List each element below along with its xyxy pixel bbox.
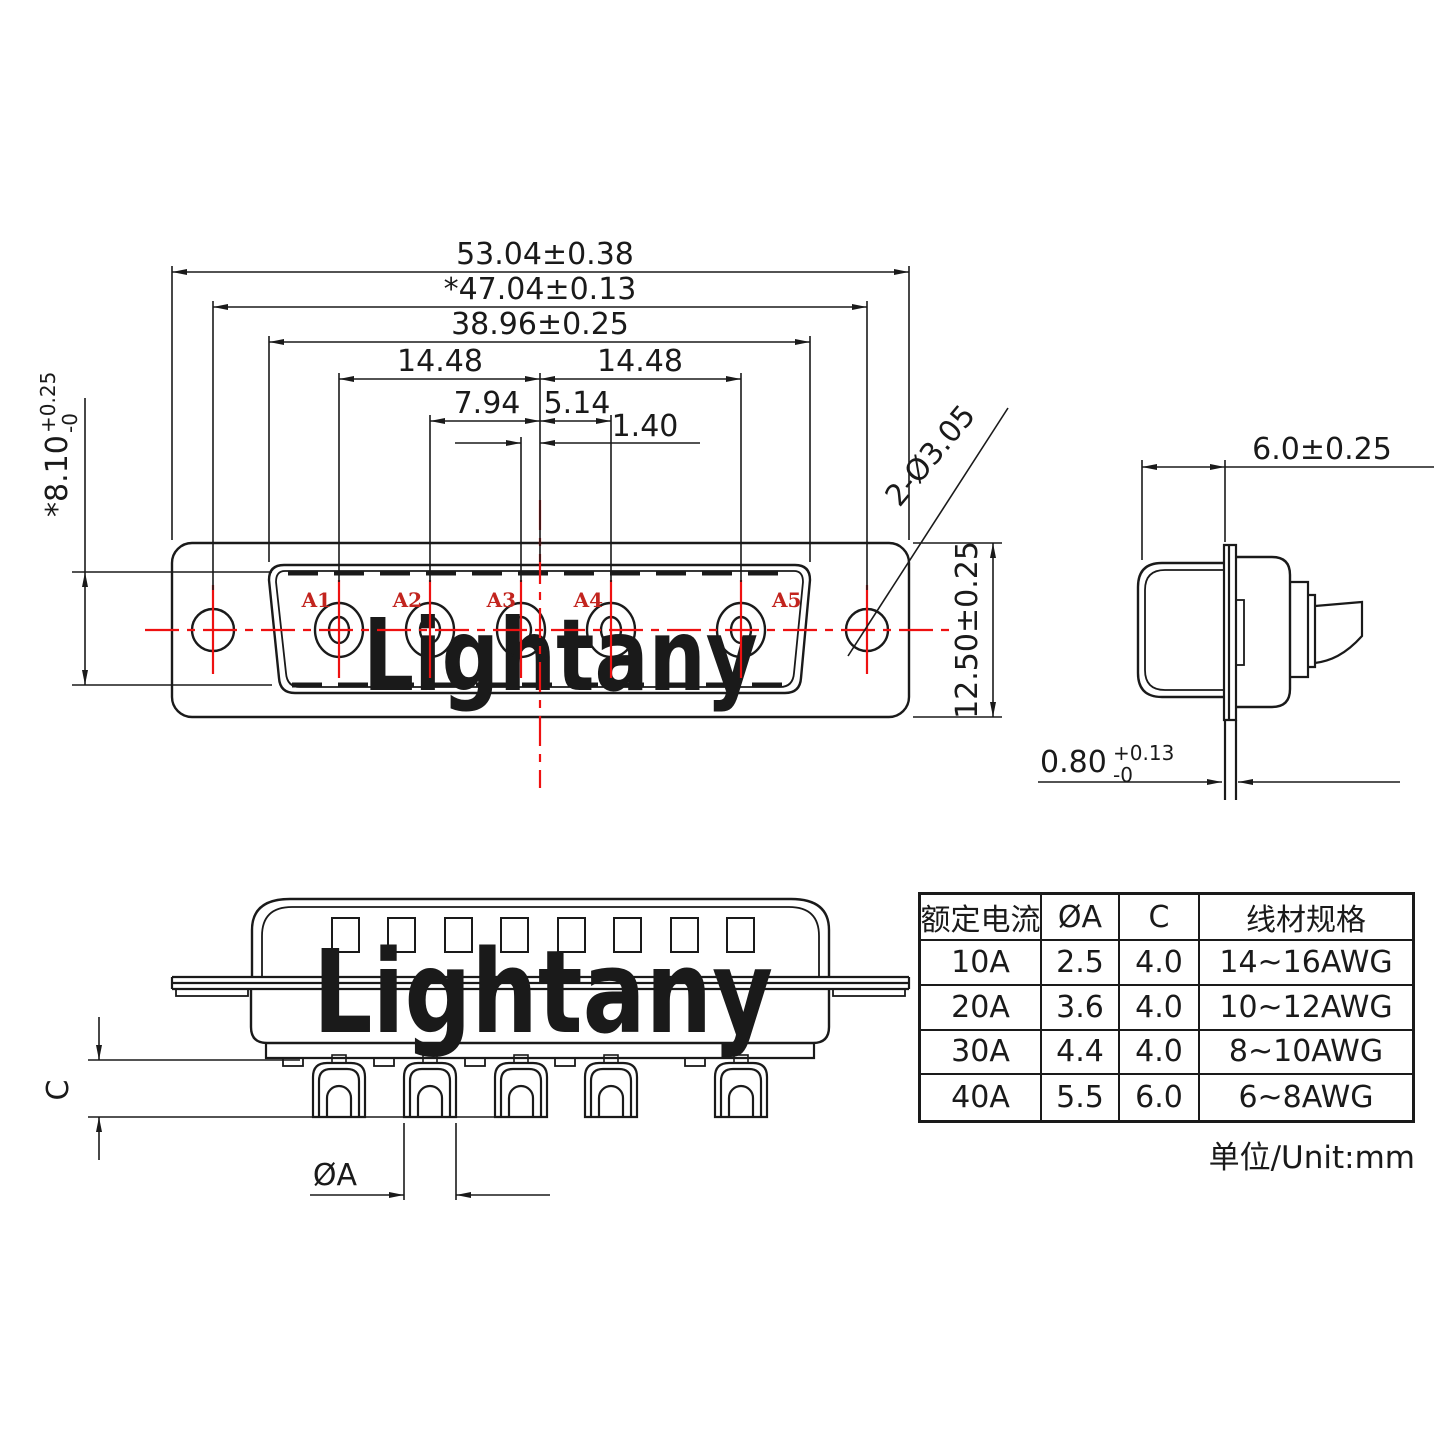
- table-cell: 40A: [921, 1075, 1042, 1120]
- table-header-wire: 线材规格: [1200, 895, 1412, 941]
- svg-text:*8.10: *8.10: [40, 435, 75, 517]
- svg-text:+0.13: +0.13: [1113, 741, 1174, 765]
- table-cell: 6~8AWG: [1200, 1075, 1412, 1120]
- dim-1448-right: 14.48: [597, 344, 683, 379]
- pin-label-a1: A1: [301, 588, 331, 612]
- solder-cup-2: [404, 1055, 456, 1117]
- side-view-dimension-texts: 6.0±0.25 0.80 +0.13 -0: [1040, 432, 1392, 787]
- side-wire-funnel: [1315, 602, 1362, 663]
- svg-text:-0: -0: [58, 413, 82, 433]
- table-header-diameter: ØA: [1042, 895, 1120, 941]
- dim-60: 6.0±0.25: [1252, 432, 1392, 467]
- table-cell: 10A: [921, 941, 1042, 986]
- technical-drawing-page: Lightany Lightany: [0, 0, 1440, 1440]
- table-cell: 10~12AWG: [1200, 986, 1412, 1031]
- table-cell: 3.6: [1042, 986, 1120, 1031]
- pin-label-a4: A4: [573, 588, 604, 612]
- dim-47: *47.04±0.13: [444, 272, 637, 307]
- solder-cup-3: [495, 1055, 547, 1117]
- table-cell: 8~10AWG: [1200, 1031, 1412, 1076]
- dim-1448-left: 14.48: [397, 344, 483, 379]
- dim-53: 53.04±0.38: [456, 237, 634, 272]
- dim-holes-note: 2-Ø3.05: [879, 399, 983, 514]
- dim-1250: 12.50±0.25: [950, 541, 985, 719]
- table-header-c: C: [1120, 895, 1200, 941]
- side-shell-outer: [1138, 563, 1224, 697]
- solder-cup-1: [313, 1055, 365, 1117]
- table-cell: 30A: [921, 1031, 1042, 1076]
- svg-text:Lightany: Lightany: [313, 926, 773, 1060]
- side-body: [1237, 557, 1290, 707]
- table-cell: 4.4: [1042, 1031, 1120, 1076]
- side-shell-inner: [1145, 570, 1224, 690]
- svg-text:0.80: 0.80: [1040, 745, 1107, 780]
- pin-label-a2: A2: [392, 588, 422, 612]
- dim-080: 0.80 +0.13 -0: [1040, 741, 1174, 787]
- unit-note: 单位/Unit:mm: [1100, 1132, 1415, 1177]
- svg-text:-0: -0: [1113, 763, 1133, 787]
- watermark-bottom: Lightany: [313, 926, 773, 1060]
- svg-text:+0.25: +0.25: [36, 372, 60, 433]
- connector-drawing-canvas: Lightany Lightany: [0, 0, 1440, 1440]
- side-flange: [1224, 545, 1236, 720]
- spec-table: 额定电流 ØA C 线材规格 10A 2.5 4.0 14~16AWG 20A …: [918, 892, 1415, 1123]
- table-cell: 4.0: [1120, 986, 1200, 1031]
- side-step-1: [1290, 582, 1308, 677]
- side-flange-tail: [1225, 720, 1236, 800]
- bottom-view-dimension-texts: C ØA: [41, 1080, 358, 1193]
- table-cell: 20A: [921, 986, 1042, 1031]
- table-header-current: 额定电流: [921, 895, 1042, 941]
- table-cell: 4.0: [1120, 1031, 1200, 1076]
- solder-cup-5: [715, 1055, 767, 1117]
- pin-label-a3: A3: [486, 588, 516, 612]
- table-cell: 4.0: [1120, 941, 1200, 986]
- dim-810: *8.10 +0.25 -0: [36, 372, 82, 517]
- table-cell: 14~16AWG: [1200, 941, 1412, 986]
- table-cell: 5.5: [1042, 1075, 1120, 1120]
- dim-3896: 38.96±0.25: [451, 307, 629, 342]
- table-cell: 6.0: [1120, 1075, 1200, 1120]
- table-cell: 2.5: [1042, 941, 1120, 986]
- dim-140: 1.40: [612, 409, 679, 444]
- dim-514: 5.14: [544, 386, 611, 421]
- side-body-boss: [1236, 600, 1244, 665]
- solder-cups: [313, 1055, 767, 1117]
- pin-label-a5: A5: [771, 588, 801, 612]
- dim-c-label: C: [41, 1080, 76, 1101]
- solder-cup-4: [585, 1055, 637, 1117]
- dim-a-label: ØA: [313, 1158, 358, 1193]
- dim-794: 7.94: [454, 386, 521, 421]
